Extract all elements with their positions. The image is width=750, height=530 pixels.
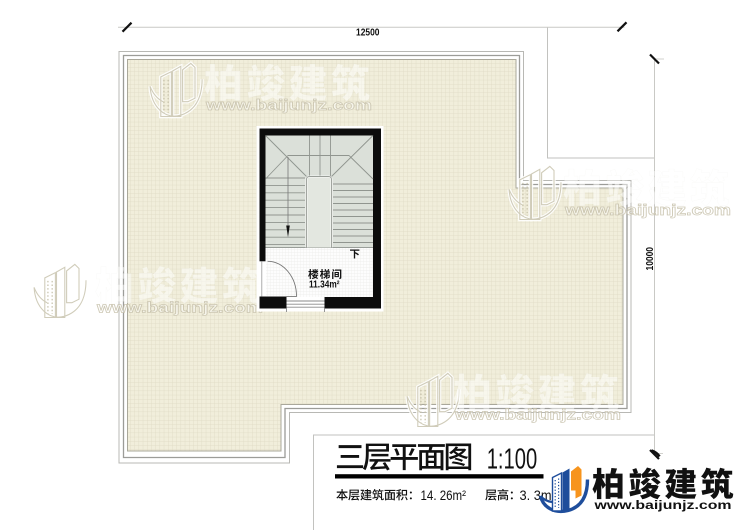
svg-text:www.baijunjz.com: www.baijunjz.com <box>593 500 731 512</box>
svg-text:14. 26m²: 14. 26m² <box>421 487 467 503</box>
svg-text:www.baijunjz.com: www.baijunjz.com <box>205 98 372 114</box>
svg-text:www.baijunjz.com: www.baijunjz.com <box>96 301 263 317</box>
svg-text:10000: 10000 <box>645 247 656 271</box>
svg-text:12500: 12500 <box>356 28 380 39</box>
svg-text:1:100: 1:100 <box>487 444 538 476</box>
svg-text:11.34m²: 11.34m² <box>309 280 340 291</box>
svg-text:www.baijunjz.com: www.baijunjz.com <box>454 408 621 424</box>
svg-text:www.baijunjz.com: www.baijunjz.com <box>564 203 731 219</box>
